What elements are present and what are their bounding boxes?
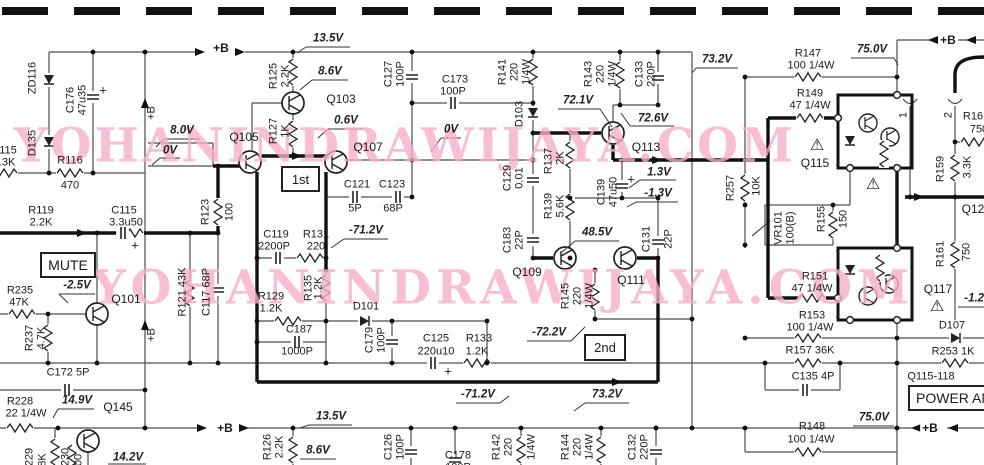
component-label: 750 xyxy=(962,243,973,261)
component-label: 220 xyxy=(573,287,584,305)
component-label: 2.2K xyxy=(281,65,292,88)
component-label: R257 xyxy=(726,175,737,201)
component-label: VR101 xyxy=(774,211,785,245)
component-label: 1/4W xyxy=(608,61,619,87)
component-label: 1/4W xyxy=(527,434,538,460)
component-label: 1.2K xyxy=(314,277,325,300)
component-label: Q101 xyxy=(111,293,140,305)
voltage-label: 0V xyxy=(444,124,458,136)
component-label: 8K xyxy=(38,453,49,465)
component-label: R123 xyxy=(201,199,212,225)
component-label: 47K xyxy=(9,298,29,309)
component-label: R143 xyxy=(584,61,595,87)
component-label: D107 xyxy=(939,321,965,332)
component-label: C178 xyxy=(445,451,471,462)
component-label: Q111 xyxy=(617,274,645,286)
component-label: D103 xyxy=(515,101,526,127)
component-label: C173 xyxy=(442,75,468,86)
component-label: Q115 xyxy=(801,157,829,169)
component-label: C115 xyxy=(111,206,136,217)
component-label: R161 xyxy=(936,241,947,267)
component-label: R126 xyxy=(263,434,274,460)
component-label: 220 xyxy=(510,63,521,81)
component-label: C117 68P xyxy=(202,268,213,316)
component-label: C133 xyxy=(635,61,646,87)
component-label: 2200P xyxy=(258,242,290,253)
component-label: + xyxy=(131,239,139,252)
component-label: 22P xyxy=(664,229,675,249)
component-label: + xyxy=(627,173,635,186)
component-label: 4.7K xyxy=(37,327,48,350)
component-label: 100P xyxy=(396,61,407,87)
voltage-label: 75.0V xyxy=(857,44,887,56)
voltage-label: 1.3V xyxy=(647,167,671,179)
component-label: R127 xyxy=(269,118,280,144)
component-label: 100 xyxy=(225,203,236,221)
component-label: 115 xyxy=(0,146,17,157)
component-label: 47u50 xyxy=(609,177,620,208)
component-label: C121 xyxy=(344,180,370,191)
component-label: 220 xyxy=(307,242,325,253)
component-label: Q107 xyxy=(353,141,382,153)
component-label: C179 xyxy=(365,327,376,353)
component-label: 100(B) xyxy=(786,211,797,244)
component-label: 230 xyxy=(61,448,72,465)
component-label: 2.2K xyxy=(275,436,286,459)
component-label: 2.2K xyxy=(30,218,53,229)
component-label: +B xyxy=(920,422,940,434)
component-label: D101 xyxy=(353,302,379,313)
component-label: ⚠ xyxy=(866,177,880,193)
component-label: 100P xyxy=(396,434,407,460)
voltage-label: 8.6V xyxy=(306,445,330,457)
voltage-label: 72.1V xyxy=(563,95,593,107)
component-label: 470 xyxy=(61,181,79,192)
voltage-label: 0V xyxy=(163,145,177,157)
component-label: R228 xyxy=(7,397,33,408)
component-label: C183 xyxy=(503,227,514,253)
component-label: C119 xyxy=(263,230,288,241)
component-label: 22P xyxy=(515,230,526,250)
component-label: R139 xyxy=(544,193,555,219)
component-label: C125 xyxy=(423,334,449,345)
component-label: 100P xyxy=(377,327,388,353)
schematic-page: YOHANINDRAWIJAYA.COM YOHANINDRAWIJAYA.CO… xyxy=(0,0,984,465)
component-label: ⚠ xyxy=(930,299,944,315)
component-label: ZD116 xyxy=(28,62,39,94)
component-label: R235 xyxy=(7,286,33,297)
voltage-label: 14.2V xyxy=(113,452,143,464)
component-label: R253 1K xyxy=(932,347,975,358)
component-label: 100 1/4W xyxy=(787,435,834,446)
component-label: R149 xyxy=(797,89,823,100)
component-label: R147 xyxy=(795,49,821,60)
component-label: 1 xyxy=(899,112,910,118)
component-label: 47 1/4W xyxy=(790,101,831,112)
component-label: Q113 xyxy=(632,141,660,153)
component-label: R16 xyxy=(963,112,983,123)
component-label: C187 xyxy=(286,325,312,336)
component-label: 1K xyxy=(281,124,292,137)
component-label: R137 xyxy=(544,148,555,174)
component-label: Q117 xyxy=(924,283,952,295)
component-label: 100P xyxy=(440,87,466,98)
component-label: 3.3K xyxy=(0,158,15,169)
component-label: 1/4W xyxy=(585,283,596,309)
component-label: +B xyxy=(147,328,158,342)
component-label: R116 xyxy=(57,156,82,167)
component-label: 1/4W xyxy=(585,434,596,460)
component-label: R159 xyxy=(936,156,947,182)
component-label: +B xyxy=(211,42,231,54)
component-label: R153 xyxy=(799,311,825,322)
component-label: 229 xyxy=(25,448,36,465)
component-label: C123 xyxy=(379,180,405,191)
component-label: 1.2K xyxy=(260,304,283,315)
component-label: R141 xyxy=(498,59,509,85)
component-label: C126 xyxy=(384,434,395,460)
component-label: 1/4W xyxy=(522,59,533,85)
component-label: C129 xyxy=(503,165,514,191)
component-label: +B xyxy=(147,106,158,120)
component-label: 2K xyxy=(556,151,567,164)
component-label: +B xyxy=(215,422,235,434)
component-label: R148 xyxy=(799,422,825,433)
voltage-label: -71.2V xyxy=(349,225,383,237)
component-label: 220u10 xyxy=(418,347,455,358)
component-label: 47 1/4W xyxy=(792,284,833,295)
component-label: + xyxy=(444,365,452,378)
voltage-label: -1.3V xyxy=(644,188,672,200)
component-label: 100 1/4W xyxy=(787,61,834,72)
component-label: R131 xyxy=(303,230,329,241)
component-label: 5.6K xyxy=(556,195,567,218)
component-label: Q12 xyxy=(962,203,984,215)
component-label: + xyxy=(99,84,107,97)
component-label: 220P xyxy=(647,61,658,87)
component-label: 3.3K xyxy=(963,156,974,179)
component-label: R119 xyxy=(28,206,53,217)
component-label: R155 xyxy=(817,206,828,232)
component-label: C172 5P xyxy=(47,368,90,379)
component-label: R145 xyxy=(561,283,572,309)
component-label: 22 1/4W xyxy=(6,409,47,420)
voltage-label: -71.2V xyxy=(461,389,495,401)
component-label: R144 xyxy=(561,434,572,460)
component-label: 10K xyxy=(752,176,763,196)
component-label: C127 xyxy=(384,61,395,87)
component-label: C139 xyxy=(597,179,608,205)
component-label: R133 xyxy=(466,334,492,345)
voltage-label: -1.2V xyxy=(964,293,984,305)
component-label: R142 xyxy=(492,434,503,460)
component-label: 00 xyxy=(74,454,85,465)
component-label: Q145 xyxy=(103,401,132,413)
component-label: Q105 xyxy=(229,131,258,143)
component-label: 2 xyxy=(944,112,955,118)
component-label: 220P xyxy=(640,434,651,460)
component-label: 5P xyxy=(348,204,361,215)
voltage-label: 0.6V xyxy=(334,115,358,127)
voltage-label: 73.2V xyxy=(592,389,622,401)
component-label: 47u35 xyxy=(78,85,89,116)
component-label: ⚠ xyxy=(810,138,824,154)
component-label: 1.2K xyxy=(466,347,489,358)
component-label: R157 36K xyxy=(786,346,835,357)
component-label: 220 xyxy=(573,438,584,456)
voltage-label: 8.6V xyxy=(318,66,342,78)
voltage-label: 13.5V xyxy=(316,411,346,423)
component-label: 3.3u50 xyxy=(109,218,143,229)
component-label: C131 xyxy=(642,226,653,252)
voltage-label: 48.5V xyxy=(582,227,612,239)
component-label: R125 xyxy=(269,63,280,89)
labels-layer: 1153.3KZD116D135C17647u35+R116470R1192.2… xyxy=(0,0,984,465)
voltage-label: -2.5V xyxy=(63,280,91,292)
component-label: +B xyxy=(938,34,958,46)
voltage-label: 75.0V xyxy=(859,412,889,424)
component-label: 0.01 xyxy=(515,167,526,188)
voltage-label: -72.2V xyxy=(532,327,566,339)
component-label: 1000P xyxy=(281,347,313,358)
component-label: R237 xyxy=(25,325,36,351)
component-label: D135 xyxy=(28,130,39,156)
component-label: 750 xyxy=(970,125,984,136)
component-label: Q103 xyxy=(326,93,355,105)
component-label: 220 xyxy=(596,65,607,83)
component-label: Q109 xyxy=(512,266,541,278)
component-label: C135 4P xyxy=(792,372,835,383)
component-label: R121 43K xyxy=(178,268,189,317)
component-label: 100 1/4W xyxy=(786,323,833,334)
voltage-label: 73.2V xyxy=(702,54,732,66)
component-label: C176 xyxy=(66,87,77,113)
voltage-label: 13.5V xyxy=(313,33,343,45)
component-label: 68P xyxy=(383,204,403,215)
component-label: R151 xyxy=(802,272,828,283)
component-label: 150 xyxy=(839,210,850,228)
component-label: C132 xyxy=(628,434,639,460)
component-label: R129 xyxy=(258,292,284,303)
voltage-label: 14.9V xyxy=(62,395,92,407)
voltage-label: 72.6V xyxy=(638,113,668,125)
component-label: Q115-118 xyxy=(907,372,954,383)
component-label: 220 xyxy=(504,438,515,456)
voltage-label: 8.0V xyxy=(170,125,194,137)
